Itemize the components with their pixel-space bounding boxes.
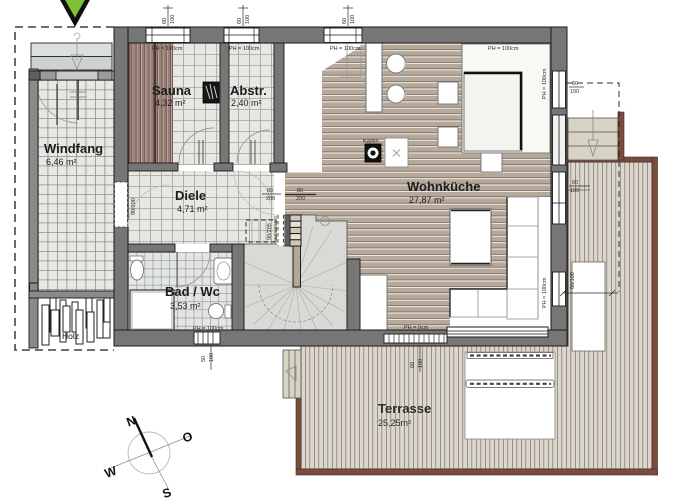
svg-text:100: 100: [350, 15, 356, 24]
svg-text:Sauna: Sauna: [152, 83, 192, 98]
svg-text:PH = 100cm: PH = 100cm: [542, 277, 548, 308]
svg-text:100: 100: [209, 353, 215, 362]
svg-text:4,71 m²: 4,71 m²: [177, 204, 208, 214]
svg-text:100: 100: [245, 15, 251, 24]
svg-text:100: 100: [570, 188, 579, 194]
svg-text:PH = 100cm: PH = 100cm: [229, 46, 260, 52]
svg-text:PH = 100cm: PH = 100cm: [488, 46, 519, 52]
svg-text:6,46 m²: 6,46 m²: [46, 157, 77, 167]
svg-text:PH = 100cm: PH = 100cm: [193, 326, 224, 332]
svg-text:25,25m²: 25,25m²: [378, 418, 411, 428]
svg-text:100: 100: [418, 359, 424, 368]
svg-text:2,40 m²: 2,40 m²: [231, 98, 262, 108]
svg-text:90/200: 90/200: [131, 198, 137, 215]
svg-text:60/100: 60/100: [570, 272, 576, 289]
svg-text:Holz: Holz: [62, 331, 79, 341]
svg-text:80: 80: [297, 188, 303, 194]
svg-text:60: 60: [162, 18, 168, 24]
svg-text:PH = 100cm: PH = 100cm: [330, 46, 361, 52]
svg-text:4,32 m²: 4,32 m²: [155, 98, 186, 108]
svg-text:80: 80: [267, 188, 273, 194]
svg-text:Windfang: Windfang: [44, 141, 103, 156]
svg-text:60: 60: [572, 81, 578, 87]
svg-text:PH = 0cm: PH = 0cm: [404, 325, 429, 331]
svg-text:3,53 m²: 3,53 m²: [170, 301, 201, 311]
svg-text:100: 100: [570, 89, 579, 95]
svg-text:Terrasse: Terrasse: [378, 401, 431, 416]
svg-text:90/205: 90/205: [267, 223, 273, 240]
svg-text:200: 200: [266, 196, 275, 202]
svg-text:PH = 100cm: PH = 100cm: [542, 68, 548, 99]
svg-text:60: 60: [342, 18, 348, 24]
svg-text:60: 60: [237, 18, 243, 24]
svg-text:Diele: Diele: [175, 188, 206, 203]
svg-text:PH = 100cm: PH = 100cm: [152, 46, 183, 52]
svg-text:100: 100: [170, 15, 176, 24]
svg-text:60: 60: [410, 362, 416, 368]
svg-text:200: 200: [296, 196, 305, 202]
svg-text:60: 60: [572, 180, 578, 186]
svg-text:Wohnküche: Wohnküche: [407, 179, 480, 194]
svg-text:Abstr.: Abstr.: [230, 83, 267, 98]
svg-text:27,87 m²: 27,87 m²: [409, 195, 445, 205]
svg-text:50: 50: [201, 356, 207, 362]
svg-text:Bad / Wc: Bad / Wc: [165, 284, 220, 299]
